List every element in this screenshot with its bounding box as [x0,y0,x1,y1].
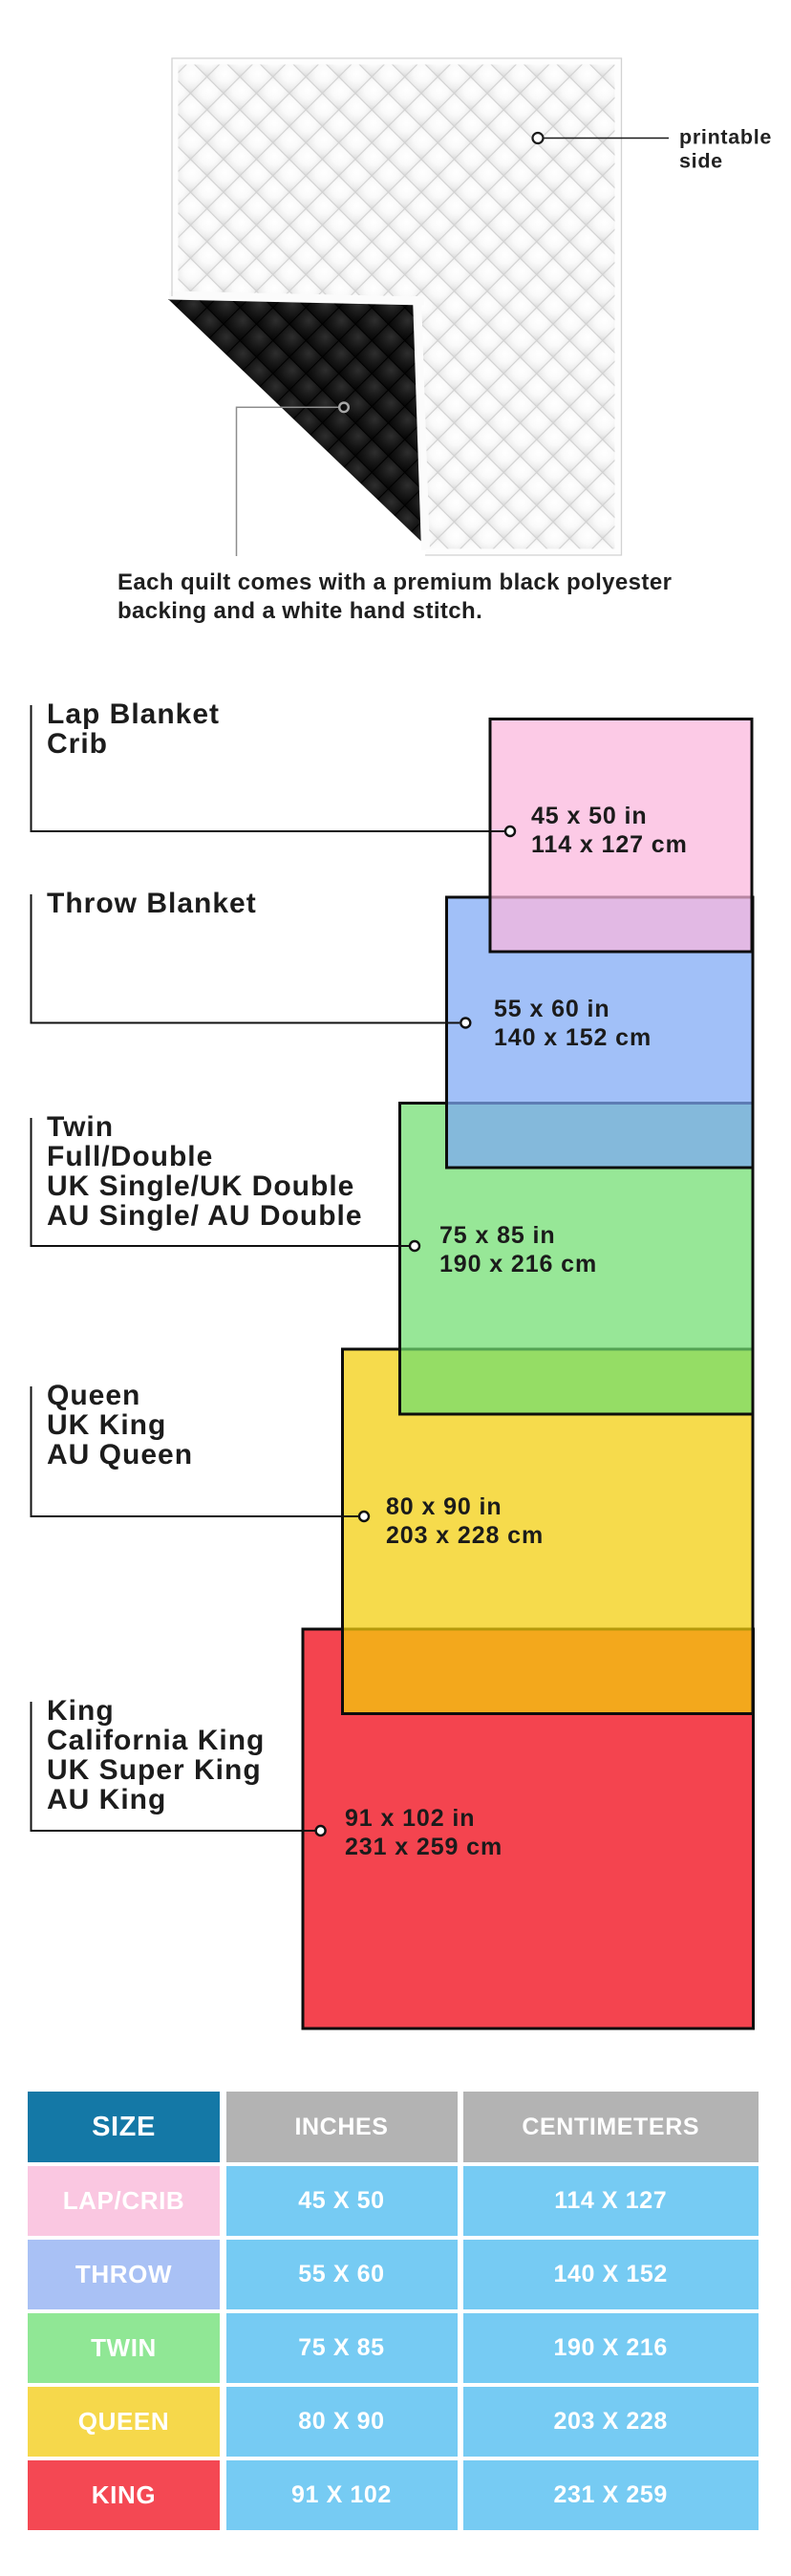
svg-text:Each quilt comes with a premiu: Each quilt comes with a premium black po… [118,569,672,595]
svg-text:side: side [679,150,723,173]
svg-text:backing and a white hand stitc: backing and a white hand stitch. [118,598,482,624]
svg-text:printable: printable [679,126,772,149]
